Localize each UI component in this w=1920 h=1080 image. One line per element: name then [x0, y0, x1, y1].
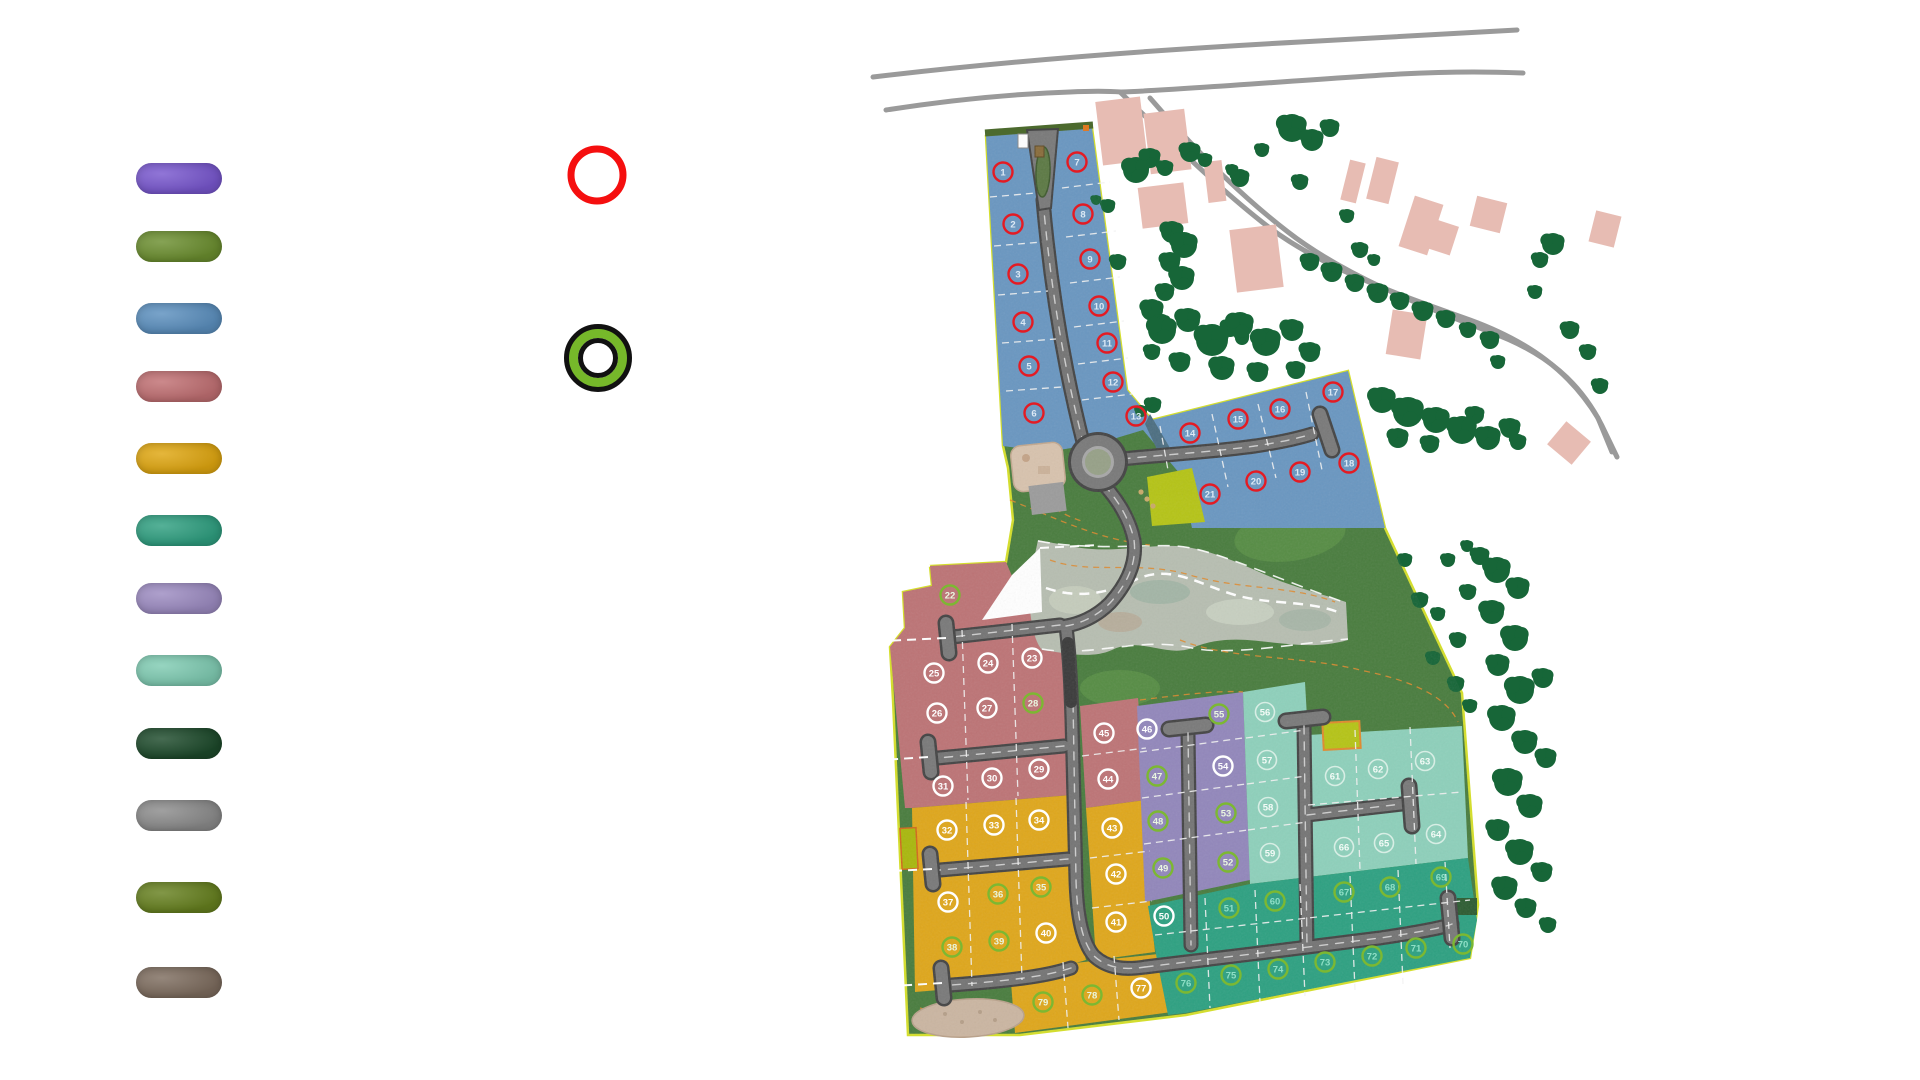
tree-icon: [1465, 592, 1473, 600]
svg-text:11: 11: [1102, 338, 1113, 349]
svg-text:50: 50: [1159, 911, 1170, 922]
tree-icon: [1515, 851, 1528, 864]
tree-icon: [1533, 292, 1540, 299]
tree-icon: [1115, 262, 1123, 270]
tree-icon: [1187, 152, 1197, 162]
svg-text:8: 8: [1080, 209, 1085, 220]
tree-icon: [1472, 415, 1481, 424]
existing-building: [1470, 196, 1508, 234]
tree-icon: [1521, 741, 1533, 753]
svg-text:73: 73: [1320, 957, 1331, 968]
tree-icon: [1455, 640, 1463, 648]
svg-text:46: 46: [1142, 724, 1153, 735]
svg-text:53: 53: [1221, 808, 1232, 819]
tree-icon: [1494, 664, 1505, 675]
svg-text:35: 35: [1036, 882, 1047, 893]
tree-icon: [1514, 587, 1525, 598]
svg-text:60: 60: [1270, 896, 1281, 907]
svg-text:42: 42: [1111, 869, 1122, 880]
tree-icon: [1443, 319, 1452, 328]
svg-text:41: 41: [1111, 917, 1122, 928]
tree-icon: [1545, 925, 1553, 933]
tree-icon: [1157, 329, 1171, 343]
tree-icon: [1567, 330, 1576, 339]
svg-text:17: 17: [1328, 387, 1339, 398]
tree-icon: [1184, 319, 1196, 331]
tree-icon: [1510, 637, 1523, 650]
svg-text:12: 12: [1108, 377, 1119, 388]
svg-text:56: 56: [1260, 707, 1271, 718]
tree-icon: [1261, 341, 1275, 355]
tree-icon: [1446, 560, 1453, 567]
tree-icon: [1395, 438, 1405, 448]
tree-icon: [1468, 706, 1475, 713]
svg-text:79: 79: [1038, 997, 1049, 1008]
svg-text:27: 27: [982, 703, 993, 714]
svg-text:30: 30: [987, 773, 998, 784]
tree-icon: [1206, 339, 1222, 355]
tree-icon: [1288, 329, 1299, 340]
tree-icon: [1345, 216, 1352, 223]
tree-icon: [1465, 330, 1473, 338]
tree-icon: [1457, 429, 1471, 443]
tree-icon: [1539, 872, 1549, 882]
tree-icon: [1537, 260, 1545, 268]
tree-icon: [1496, 362, 1503, 369]
svg-text:69: 69: [1436, 872, 1447, 883]
svg-text:1: 1: [1000, 167, 1006, 178]
tree-icon: [1255, 372, 1265, 382]
svg-text:34: 34: [1034, 815, 1045, 826]
tree-icon: [1549, 243, 1560, 254]
tree-icon: [1515, 689, 1529, 703]
tree-icon: [1218, 367, 1230, 379]
svg-text:63: 63: [1420, 756, 1431, 767]
svg-text:70: 70: [1458, 939, 1469, 950]
svg-text:19: 19: [1295, 467, 1306, 478]
svg-text:66: 66: [1339, 842, 1350, 853]
tree-icon: [1503, 781, 1517, 795]
tree-icon: [1488, 611, 1500, 623]
tree-icon: [1106, 206, 1113, 213]
tree-icon: [1501, 887, 1513, 899]
svg-text:23: 23: [1027, 653, 1038, 664]
svg-text:4: 4: [1020, 317, 1026, 328]
svg-text:44: 44: [1103, 774, 1114, 785]
tree-icon: [1177, 362, 1187, 372]
tree-icon: [1162, 168, 1170, 176]
tree-icon: [1179, 244, 1192, 257]
tree-icon: [1397, 301, 1406, 310]
svg-text:7: 7: [1074, 157, 1079, 168]
tree-icon: [1327, 128, 1336, 137]
svg-text:51: 51: [1224, 903, 1235, 914]
tree-icon: [1526, 805, 1538, 817]
tree-icon: [1293, 370, 1302, 379]
svg-text:45: 45: [1099, 728, 1110, 739]
tree-icon: [1287, 127, 1301, 141]
existing-building: [1589, 210, 1622, 247]
tree-icon: [1436, 614, 1443, 621]
tree-icon: [1484, 437, 1496, 449]
svg-text:65: 65: [1379, 838, 1390, 849]
tree-icon: [1543, 758, 1553, 768]
tree-icon: [1307, 352, 1317, 362]
tree-icon: [1427, 444, 1436, 453]
tree-icon: [1420, 311, 1430, 321]
existing-building: [1366, 157, 1399, 204]
tree-icon: [1492, 569, 1505, 582]
svg-text:28: 28: [1028, 698, 1039, 709]
svg-text:29: 29: [1034, 764, 1045, 775]
existing-building: [1138, 182, 1189, 228]
tree-icon: [1515, 442, 1523, 450]
svg-text:32: 32: [942, 825, 953, 836]
svg-text:40: 40: [1041, 928, 1052, 939]
svg-text:78: 78: [1087, 990, 1098, 1001]
site-plan-map: 1234567891011121314151617181920212223242…: [0, 0, 1920, 1080]
tree-icon: [1230, 170, 1236, 176]
svg-text:6: 6: [1031, 408, 1036, 419]
svg-text:16: 16: [1275, 404, 1286, 415]
tree-icon: [1149, 352, 1157, 360]
svg-text:25: 25: [929, 668, 940, 679]
tree-icon: [1235, 324, 1248, 337]
svg-text:47: 47: [1152, 771, 1163, 782]
svg-text:24: 24: [983, 658, 994, 669]
svg-text:72: 72: [1367, 951, 1378, 962]
svg-text:9: 9: [1087, 254, 1092, 265]
svg-text:18: 18: [1344, 458, 1355, 469]
svg-text:67: 67: [1339, 887, 1350, 898]
tree-icon: [1403, 560, 1410, 567]
svg-text:15: 15: [1233, 414, 1244, 425]
tree-icon: [1162, 292, 1171, 301]
svg-text:75: 75: [1226, 970, 1237, 981]
svg-text:76: 76: [1181, 978, 1192, 989]
svg-text:49: 49: [1158, 863, 1169, 874]
existing-building: [1547, 421, 1591, 465]
svg-text:38: 38: [947, 942, 958, 953]
svg-text:13: 13: [1131, 411, 1142, 422]
svg-text:21: 21: [1205, 489, 1216, 500]
page: 1234567891011121314151617181920212223242…: [0, 0, 1920, 1080]
existing-building: [1229, 224, 1283, 292]
svg-text:71: 71: [1411, 943, 1422, 954]
svg-text:36: 36: [993, 889, 1004, 900]
svg-text:33: 33: [989, 820, 1000, 831]
tree-icon: [1352, 283, 1361, 292]
svg-text:52: 52: [1223, 857, 1234, 868]
svg-text:68: 68: [1385, 882, 1396, 893]
tree-icon: [1494, 829, 1505, 840]
tree-icon: [1329, 272, 1339, 282]
tree-icon: [1377, 399, 1390, 412]
svg-text:20: 20: [1251, 476, 1262, 487]
svg-text:14: 14: [1185, 428, 1196, 439]
tree-icon: [1131, 169, 1144, 182]
tree-icon: [1150, 405, 1158, 413]
svg-text:3: 3: [1015, 269, 1020, 280]
svg-text:22: 22: [945, 590, 956, 601]
tree-icon: [1372, 260, 1378, 266]
tree-icon: [1357, 250, 1365, 258]
tree-icon: [1203, 160, 1210, 167]
svg-text:39: 39: [994, 936, 1005, 947]
tree-icon: [1585, 352, 1593, 360]
svg-text:31: 31: [938, 781, 949, 792]
tree-icon: [1147, 158, 1157, 168]
svg-text:74: 74: [1273, 964, 1284, 975]
tree-icon: [1523, 908, 1533, 918]
tree-icon: [1297, 182, 1305, 190]
svg-text:64: 64: [1431, 829, 1442, 840]
tree-icon: [1240, 338, 1247, 345]
svg-text:10: 10: [1094, 301, 1105, 312]
tree-icon: [1540, 678, 1550, 688]
svg-text:37: 37: [943, 897, 954, 908]
tree-icon: [1477, 556, 1486, 565]
tree-icon: [1260, 150, 1267, 157]
tree-icon: [1237, 178, 1246, 187]
svg-text:54: 54: [1218, 761, 1229, 772]
tree-icon: [1403, 411, 1418, 426]
svg-text:55: 55: [1214, 709, 1225, 720]
tree-icon: [1597, 386, 1605, 394]
tree-icon: [1307, 262, 1316, 271]
tree-icon: [1497, 717, 1510, 730]
svg-text:58: 58: [1263, 802, 1274, 813]
svg-text:61: 61: [1330, 771, 1341, 782]
svg-text:57: 57: [1262, 755, 1273, 766]
tree-icon: [1465, 546, 1471, 552]
tree-icon: [1487, 340, 1496, 349]
svg-text:48: 48: [1153, 816, 1164, 827]
tree-icon: [1308, 139, 1319, 150]
svg-text:77: 77: [1136, 983, 1147, 994]
tree-icon: [1375, 293, 1385, 303]
svg-text:5: 5: [1026, 361, 1032, 372]
existing-building: [1340, 160, 1365, 204]
svg-text:43: 43: [1107, 823, 1118, 834]
svg-text:59: 59: [1265, 848, 1276, 859]
tree-icon: [1178, 277, 1190, 289]
tree-icon: [1431, 419, 1444, 432]
svg-text:26: 26: [932, 708, 943, 719]
svg-text:2: 2: [1010, 219, 1015, 230]
svg-text:62: 62: [1373, 764, 1384, 775]
